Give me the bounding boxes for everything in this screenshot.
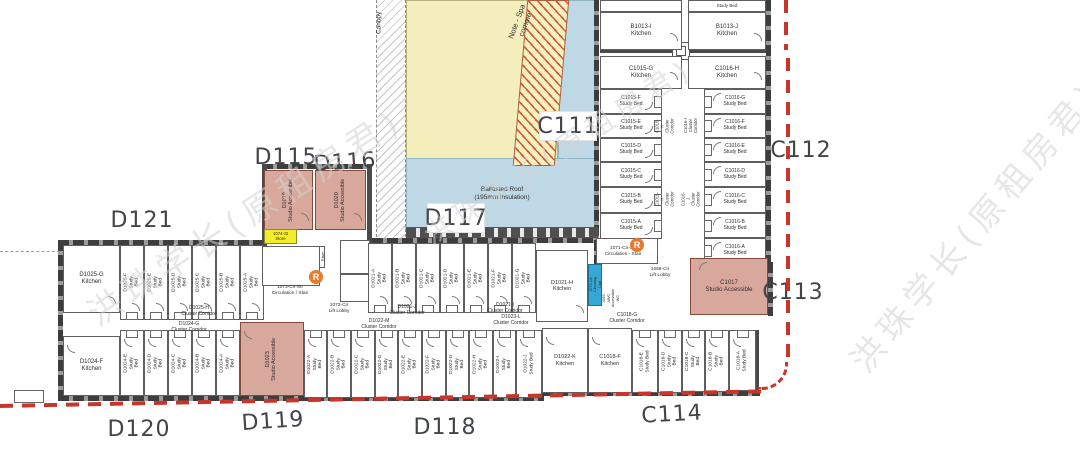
room-label: D1022-C Study Bed — [355, 353, 372, 375]
area-label-d117: D117 — [428, 204, 484, 232]
ensuite-pod — [523, 330, 535, 338]
door-arc — [172, 339, 180, 347]
room-top-partial-left — [600, 0, 682, 12]
door-arc — [713, 242, 721, 250]
door-arc — [713, 191, 721, 199]
door-arc — [592, 337, 600, 345]
room-c1016-g: C1016-G Study Bed — [704, 89, 766, 114]
corridor-d1022m: D1022-M Cluster Corridor — [350, 317, 408, 331]
room-label: C1015-A Study Bed — [619, 220, 642, 232]
door-arc — [497, 339, 505, 347]
ensuite-pod — [333, 330, 345, 338]
room-c1016-d: C1016-D Study Bed — [704, 162, 766, 187]
door-arc — [180, 303, 188, 311]
room-d1022-a: D1022-A Study Bed — [304, 330, 327, 398]
ensuite-pod — [398, 305, 410, 313]
room-d1021-b: D1021-B Study Bed — [392, 243, 416, 313]
door-arc — [331, 339, 339, 347]
room-label: D1024-E Study Bed — [124, 352, 141, 374]
door-arc — [402, 339, 410, 347]
room-c1018-f: C1018-F Kitchen — [588, 328, 632, 393]
room-label: C1016-D Study Bed — [723, 169, 746, 181]
site-boundary — [786, 58, 790, 364]
room-d1021-e: D1021-E Study Bed — [464, 243, 488, 313]
door-arc — [713, 142, 721, 150]
ensuite-pod — [198, 312, 210, 320]
area-label-d120: D120 — [108, 414, 170, 444]
refuge-badge: R — [630, 238, 644, 252]
door-arc — [520, 339, 528, 347]
room-d1021-h: D1021-H Kitchen — [536, 250, 588, 322]
area-label-d121: D121 — [112, 206, 172, 234]
room-d1024-a: D1024-A Study Bed — [216, 330, 240, 396]
room-1070-cir: 1070-Cir Cleaning Cpd — [588, 264, 602, 306]
room-label: D1025-F Study Bed — [124, 271, 141, 293]
room-label: D1022-I Study Bed — [496, 353, 513, 374]
room-label: C1015-B Study Bed — [619, 194, 642, 206]
corridor-c1018g: C1018-G Cluster Corridor — [598, 311, 656, 325]
ensuite-pod — [704, 120, 712, 132]
ensuite-pod — [452, 330, 464, 338]
room-label: C1015-D Study Bed — [619, 144, 642, 156]
room-c1015-g: C1015-G Kitchen — [600, 56, 682, 89]
ensuite-pod — [704, 96, 712, 108]
ensuite-pod — [174, 312, 186, 320]
room-c1015-c: C1015-C Study Bed — [600, 162, 662, 187]
room-d1019: D1019 Studio Accessible — [264, 170, 313, 230]
ensuite-pod — [704, 245, 712, 257]
room-label: D1021-D Study Bed — [444, 267, 461, 289]
door-arc — [576, 305, 584, 313]
ensuite-pod — [126, 312, 138, 320]
room-label: C1015-E Study Bed — [619, 120, 642, 132]
room-label: D1022-D Study Bed — [378, 353, 395, 374]
corridor-d1023l: D1023-L Cluster Corridor — [482, 313, 540, 327]
room-label: C1015-G Kitchen — [629, 66, 653, 80]
ensuite-pod — [150, 330, 162, 338]
room-label: C1016-B Study Bed — [723, 220, 746, 232]
ensuite-pod — [639, 330, 651, 338]
room-c1018-b: C1018-B Study Bed — [705, 330, 729, 392]
ensuite-pod — [198, 330, 210, 338]
room-d1024-e: D1024-E Study Bed — [120, 330, 144, 396]
room-label: D1019 Studio Accessible — [282, 178, 295, 221]
room-label: C1015-C Study Bed — [619, 169, 642, 181]
door-arc — [645, 102, 653, 110]
room-d1022-d: D1022-D Study Bed — [375, 330, 398, 398]
ensuite-pod — [357, 330, 369, 338]
corridor-c1016i: C1016-I Cluster Corridor — [684, 94, 697, 158]
door-arc — [713, 217, 721, 225]
room-core-room-upper — [340, 240, 370, 274]
room-d1022-i: D1022-I Study Bed — [493, 330, 516, 398]
room-c1018-d: C1018-D Study Bed — [658, 330, 682, 393]
ensuite-pod — [222, 330, 234, 338]
door-arc — [645, 150, 653, 158]
room-c1015-b: C1015-B Study Bed — [600, 187, 662, 213]
room-d1025-e: D1025-E Study Bed — [144, 245, 168, 320]
room-label: D1021-G Study Bed — [516, 267, 533, 289]
area-label-c113: C113 — [764, 278, 822, 306]
room-d1022-k: D1022-K Kitchen — [542, 328, 588, 393]
room-d1021-g: D1021-G Study Bed — [512, 243, 536, 313]
room-label: C1016-A Study Bed — [723, 245, 746, 257]
refuge-badge: R — [309, 270, 323, 284]
room-label: C1016-G Study Bed — [723, 96, 746, 108]
room-d1021-c: D1021-C Study Bed — [416, 243, 440, 313]
room-label: D1022-H Study Bed — [473, 353, 490, 375]
corridor-c1016j: C1016-J Cluster Corridor — [684, 166, 697, 232]
room-label: D1024-C Study Bed — [172, 352, 189, 374]
room-label: D1025-E Study Bed — [148, 271, 165, 293]
ensuite-pod — [475, 330, 487, 338]
site-boundary — [784, 0, 788, 50]
area-label-d115: D115 — [258, 144, 314, 170]
ensuite-pod — [150, 312, 162, 320]
area-label-d118: D118 — [414, 412, 476, 442]
room-b1013-i: B1013-I Kitchen — [600, 12, 682, 50]
room-c1017: C1017 Studio Accessible — [690, 258, 768, 315]
area-label-d119: D119 — [241, 404, 305, 438]
ensuite-pod — [654, 96, 662, 108]
room-label: D1024-A Study Bed — [220, 352, 237, 374]
room-label: D1021-A Study Bed — [372, 267, 389, 289]
room-label: C1018-B Study Bed — [709, 350, 726, 372]
room-label: C1018-A Study Bed — [737, 349, 748, 371]
room-d1023: D1023 Studio Accessible — [240, 322, 304, 396]
core-east-wall — [367, 164, 372, 244]
gridline-dashed — [0, 251, 60, 253]
ensuite-pod — [654, 194, 662, 206]
door-arc — [132, 303, 140, 311]
ensuite-pod — [310, 330, 322, 338]
room-d1022-f: D1022-F Study Bed — [422, 330, 446, 398]
door-arc — [244, 331, 252, 339]
door-arc — [699, 262, 707, 270]
ensuite-pod — [246, 312, 258, 320]
room-b1013-j: B1013-J Kitchen — [688, 12, 766, 50]
room-label: D1021-B Study Bed — [396, 267, 413, 289]
room-d1021-f: D1021-F Study Bed — [488, 243, 512, 313]
door-arc — [754, 33, 762, 41]
door-arc — [426, 339, 434, 347]
room-d1022-e: D1022-E Study Bed — [398, 330, 422, 398]
ensuite-pod — [704, 220, 712, 232]
room-d1025-f: D1025-F Study Bed — [120, 245, 144, 320]
watermark: 洪珠学长(原租房君) — [837, 68, 1080, 382]
door-arc — [670, 72, 678, 80]
room-label: C1016-E Study Bed — [723, 144, 746, 156]
door-arc — [354, 213, 362, 221]
room-label: D1020 Studio Accessible — [334, 178, 347, 221]
room-cwing-stair-room — [596, 238, 658, 264]
door-arc — [713, 118, 721, 126]
room-d1022-b: D1022-B Study Bed — [327, 330, 351, 398]
ensuite-pod — [222, 312, 234, 320]
area-label-c114: C114 — [641, 398, 702, 429]
room-d1022-c: D1022-C Study Bed — [351, 330, 375, 398]
room-label: D1022-K Kitchen — [554, 354, 576, 367]
room-d1020: D1020 Studio Accessible — [315, 170, 366, 230]
door-arc — [645, 175, 653, 183]
door-arc — [428, 296, 436, 304]
room-label: D1021-F Study Bed — [492, 267, 509, 289]
room-label: C1018-E Study Bed — [639, 350, 650, 372]
room-c1016-b: C1016-B Study Bed — [704, 213, 766, 238]
door-arc — [645, 227, 653, 235]
room-d1024-f: D1024-F Kitchen — [63, 336, 120, 396]
area-label-c112: C112 — [772, 136, 830, 164]
room-label: D1025-D Study Bed — [172, 271, 189, 293]
room-top-partial-right: Study Bed — [688, 0, 766, 12]
room-c1015-e: C1015-E Study Bed — [600, 114, 662, 138]
room-label: D1022-G Study Bed — [449, 353, 466, 374]
room-label: C1016-H Kitchen — [715, 66, 739, 80]
ensuite-pod — [494, 305, 506, 313]
room-d1025-c: D1025-C Study Bed — [192, 245, 216, 320]
door-arc — [156, 303, 164, 311]
cwing-east-wall — [766, 0, 771, 262]
room-label: C1018-D Study Bed — [662, 350, 679, 372]
door-arc — [636, 339, 644, 347]
room-c1018-c: C1018-C Study Bed — [682, 330, 705, 392]
door-arc — [709, 339, 717, 347]
door-arc — [645, 201, 653, 209]
room-d1024-c: D1024-C Study Bed — [168, 330, 192, 396]
ensuite-pod — [446, 305, 458, 313]
room-label: 1070-Cir Cleaning Cpd — [588, 277, 601, 292]
door-arc — [713, 93, 721, 101]
ensuite-pod — [711, 330, 723, 338]
ensuite-pod — [174, 330, 186, 338]
room-label: D1022-F Study Bed — [426, 353, 443, 375]
room-d1021-d: D1021-D Study Bed — [440, 243, 464, 313]
room-label: D1024-F Kitchen — [80, 359, 103, 373]
area-label-d116: D116 — [315, 147, 375, 177]
door-arc — [733, 339, 741, 347]
area-label-c111: C111 — [540, 112, 596, 140]
floor-plan: Study BedB1013-I KitchenB1013-J KitchenC… — [0, 0, 1080, 472]
ensuite-pod — [499, 330, 511, 338]
door-arc — [204, 303, 212, 311]
room-label: D1021-C Study Bed — [420, 267, 437, 289]
ensuite-pod — [518, 305, 530, 313]
room-c1018-a: C1018-A Study Bed — [729, 330, 756, 391]
ensuite-pod — [654, 120, 662, 132]
room-label: B1013-I Kitchen — [630, 24, 651, 38]
room-d1025-b: D1025-B Study Bed — [216, 245, 240, 320]
door-arc — [108, 296, 116, 304]
room-label: C1016-F Study Bed — [723, 120, 746, 132]
room-c1015-a: C1015-A Study Bed — [600, 213, 662, 239]
room-d1024-d: D1024-D Study Bed — [144, 330, 168, 396]
ensuite-pod — [470, 305, 482, 313]
door-arc — [450, 339, 458, 347]
room-d1022-g: D1022-G Study Bed — [446, 330, 469, 398]
room-label: 1074-St Store — [273, 232, 288, 242]
room-label: D1021-H Kitchen — [551, 280, 573, 293]
door-arc — [355, 339, 363, 347]
door-arc — [148, 339, 156, 347]
room-label: C1018-F Kitchen — [599, 354, 620, 367]
ensuite-pod — [404, 330, 416, 338]
room-label: D1025-C Study Bed — [196, 271, 213, 293]
room-d1022-j: D1022-J Study Bed — [516, 330, 542, 398]
room-label: D1024-B Study Bed — [196, 352, 213, 374]
door-arc — [379, 339, 387, 347]
ensuite-pod — [737, 330, 749, 338]
lobby-1069: 1069-Cir Lift Lobby — [638, 266, 682, 280]
door-arc — [713, 166, 721, 174]
room-c1015-f: C1015-F Study Bed — [600, 89, 662, 114]
room-d1024-b: D1024-B Study Bed — [192, 330, 216, 396]
door-arc — [645, 126, 653, 134]
room-label: D1025-A Study Bed — [244, 271, 261, 293]
lobby-1073: 1073-Cir Lift Lobby — [318, 302, 360, 316]
room-label: Study Bed — [717, 3, 738, 8]
door-arc — [308, 339, 316, 347]
entrance-step — [14, 390, 44, 403]
room-label: D1021-E Study Bed — [468, 267, 485, 289]
door-arc — [546, 337, 554, 345]
ensuite-pod — [654, 220, 662, 232]
room-c1016-e: C1016-E Study Bed — [704, 138, 766, 162]
room-c1015-d: C1015-D Study Bed — [600, 138, 662, 162]
ensuite-pod — [688, 330, 700, 338]
ensuite-pod — [126, 330, 138, 338]
room-label: D1025-G Kitchen — [79, 272, 103, 286]
door-arc — [228, 303, 236, 311]
awc-1069: 1069-AWC Accessible WC — [602, 276, 620, 320]
room-label: B1013-J Kitchen — [716, 24, 738, 38]
room-d1025-a: D1025-A Study Bed — [240, 245, 264, 320]
door-arc — [404, 296, 412, 304]
canopy-strip — [376, 0, 406, 242]
ensuite-pod — [704, 169, 712, 181]
room-c1016-f: C1016-F Study Bed — [704, 114, 766, 138]
room-label: D1022-A Study Bed — [307, 353, 324, 374]
ensuite-pod — [381, 330, 393, 338]
room-label: D1025-B Study Bed — [220, 271, 237, 293]
room-c1016-h: C1016-H Kitchen — [688, 56, 766, 89]
ensuite-pod — [422, 305, 434, 313]
door-arc — [500, 296, 508, 304]
room-d1022-h: D1022-H Study Bed — [469, 330, 493, 398]
site-boundary — [758, 362, 788, 390]
door-arc — [524, 296, 532, 304]
room-d1021-a: D1021-A Study Bed — [368, 243, 392, 313]
room-1074-st: 1074-St Store — [264, 229, 297, 244]
room-core-room-lower — [340, 274, 370, 302]
door-arc — [124, 339, 132, 347]
room-d1025-d: D1025-D Study Bed — [168, 245, 192, 320]
room-label: D1022-E Study Bed — [402, 353, 419, 375]
room-label: D1022-B Study Bed — [331, 353, 348, 375]
room-label: C1015-F Study Bed — [619, 96, 642, 108]
room-label: D1022-J Study Bed — [523, 353, 534, 375]
door-arc — [196, 339, 204, 347]
door-arc — [252, 303, 260, 311]
room-c1018-e: C1018-E Study Bed — [632, 330, 658, 393]
door-arc — [662, 339, 670, 347]
room-label: C1017 Studio Accessible — [705, 280, 752, 294]
door-arc — [473, 339, 481, 347]
ensuite-pod — [704, 194, 712, 206]
ensuite-pod — [704, 144, 712, 156]
door-arc — [220, 339, 228, 347]
door-arc — [476, 296, 484, 304]
door-arc — [67, 345, 75, 353]
door-arc — [301, 213, 309, 221]
door-arc — [686, 339, 694, 347]
door-arc — [754, 72, 762, 80]
room-label: D1023 Studio Accessible — [266, 337, 279, 380]
ensuite-pod — [374, 305, 386, 313]
ensuite-pod — [654, 169, 662, 181]
room-label: D1024-D Study Bed — [148, 352, 165, 374]
ensuite-pod — [664, 330, 676, 338]
ensuite-pod — [428, 330, 440, 338]
room-label: C1018-C Study Bed — [685, 350, 702, 371]
door-arc — [380, 296, 388, 304]
room-label: C1016-C Study Bed — [723, 194, 746, 206]
door-arc — [670, 33, 678, 41]
room-c1016-c: C1016-C Study Bed — [704, 187, 766, 213]
ensuite-pod — [654, 144, 662, 156]
room-d1025-g: D1025-G Kitchen — [63, 245, 120, 313]
door-arc — [452, 296, 460, 304]
